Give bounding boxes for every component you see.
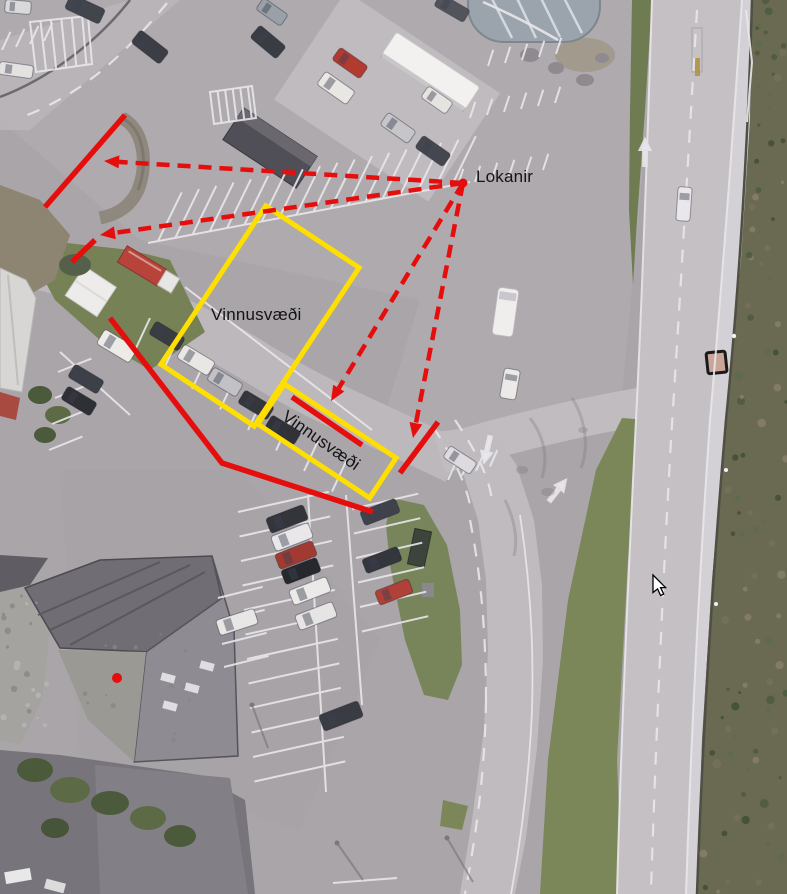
leader-origin-dot bbox=[459, 179, 468, 188]
aerial-photo bbox=[0, 0, 787, 894]
label-work-area-1: Vinnusvæði bbox=[211, 305, 302, 324]
red-dot-marker bbox=[112, 673, 122, 683]
annotated-aerial-map: Lokanir Vinnusvæði Vinnusvæði bbox=[0, 0, 787, 894]
label-lokanir: Lokanir bbox=[476, 167, 533, 186]
aerial-photo-canvas: Lokanir Vinnusvæði Vinnusvæði bbox=[0, 0, 787, 894]
